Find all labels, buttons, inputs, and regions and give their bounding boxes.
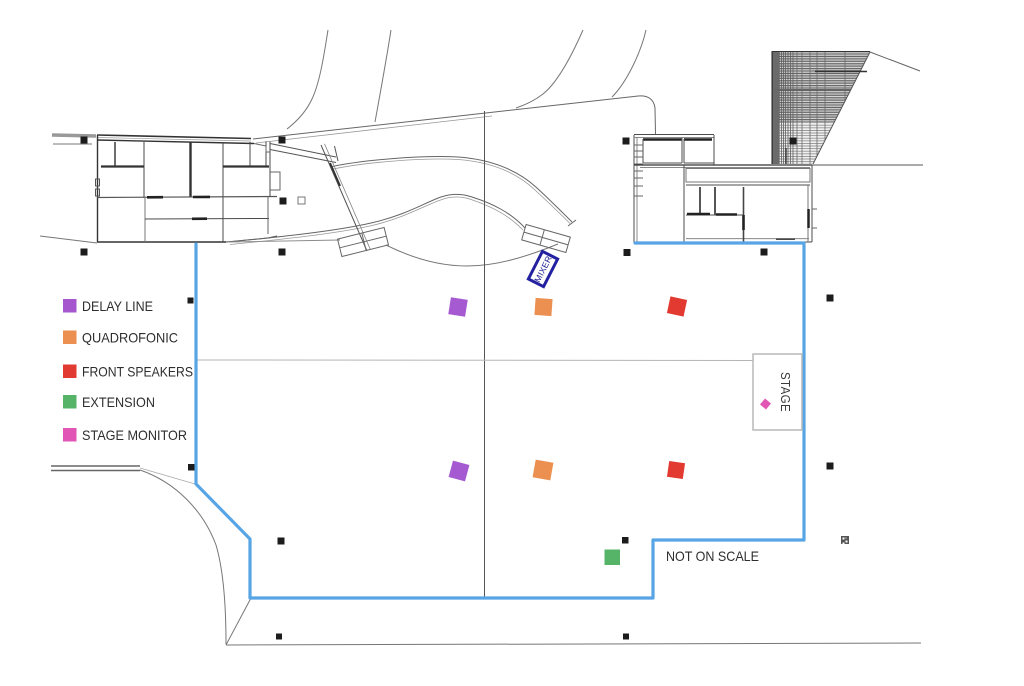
svg-text:STAGE: STAGE	[778, 372, 792, 412]
svg-text:QUADROFONIC: QUADROFONIC	[82, 330, 178, 346]
svg-text:STAGE MONITOR: STAGE MONITOR	[82, 427, 187, 443]
svg-text:NOT ON SCALE: NOT ON SCALE	[666, 548, 759, 564]
svg-text:EXTENSION: EXTENSION	[82, 394, 155, 410]
svg-text:DELAY LINE: DELAY LINE	[82, 298, 153, 314]
svg-text:FRONT SPEAKERS: FRONT SPEAKERS	[82, 364, 193, 380]
